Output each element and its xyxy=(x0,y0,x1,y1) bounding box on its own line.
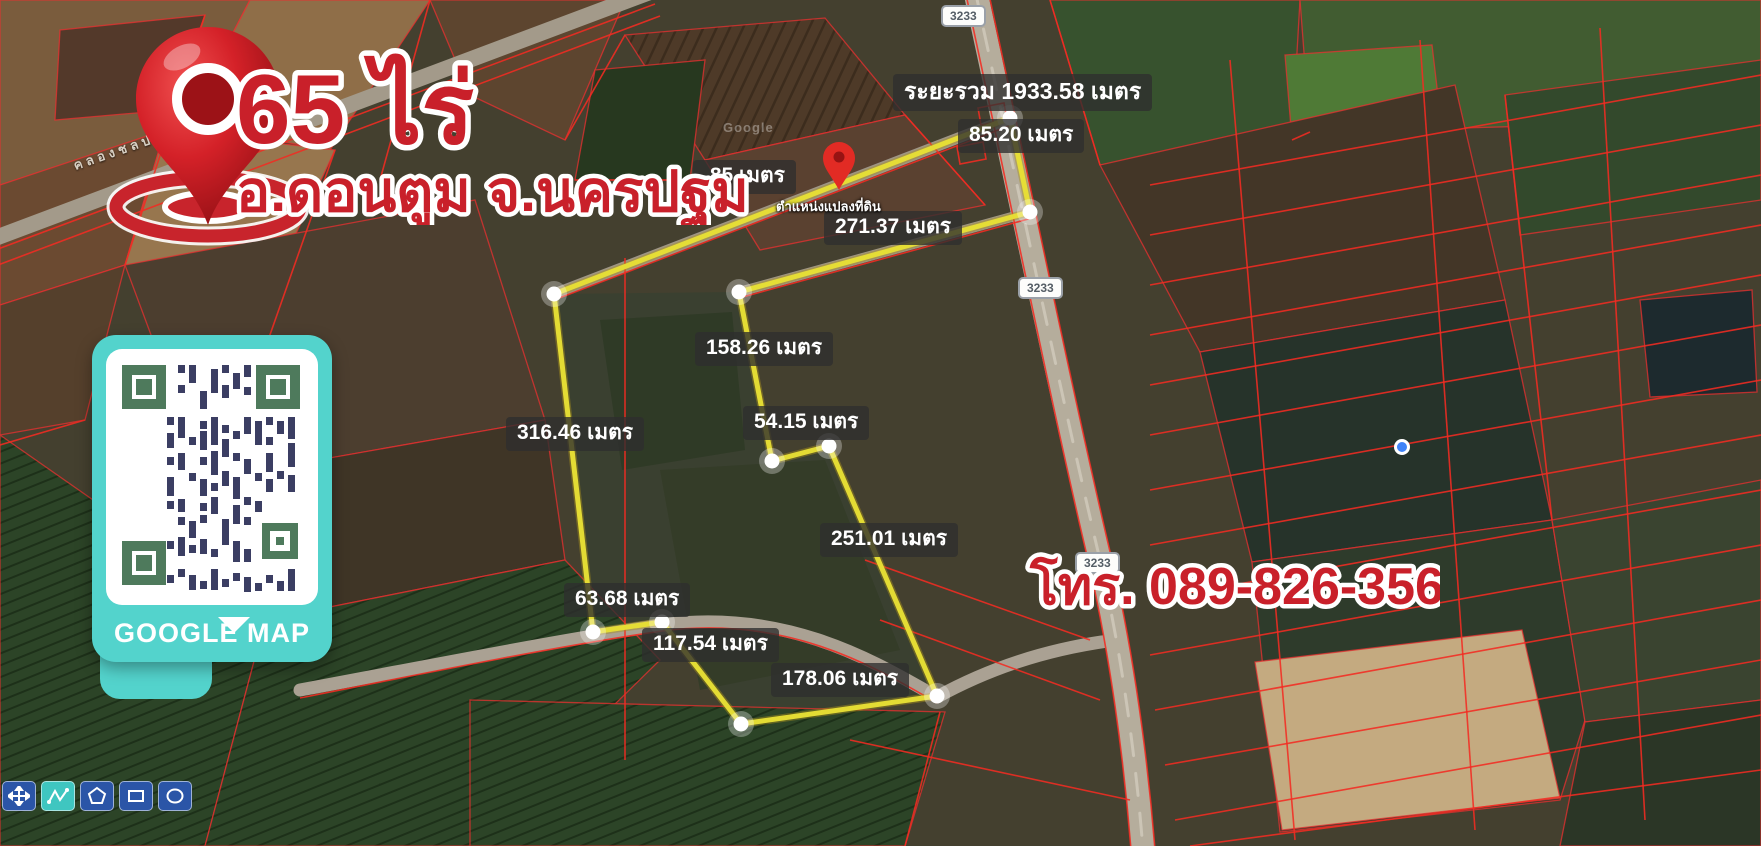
phone-block: โทร. 089-826-3563 xyxy=(1000,540,1440,635)
circle-icon xyxy=(165,786,185,806)
advert-title-block: 65 ไร่ อ.ดอนตูม จ.นครปฐม xyxy=(220,25,760,225)
circle-tool-button[interactable] xyxy=(158,781,192,811)
measurement-label-251-01: 251.01 เมตร xyxy=(820,523,958,557)
measurement-label-85-20: 85.20 เมตร xyxy=(958,119,1084,153)
area-title: 65 ไร่ xyxy=(236,53,474,164)
pan-icon xyxy=(8,786,30,806)
plot-position-caption: ตำแหน่งแปลงที่ดิน xyxy=(776,196,881,217)
qr-card-caption: GOOGLE MAP xyxy=(92,618,332,649)
measurement-label-178-06: 178.06 เมตร xyxy=(771,663,909,697)
location-title: อ.ดอนตูม จ.นครปฐม xyxy=(236,160,749,225)
map-screenshot: Google คลองชลประทาน ระยะรวม 1933.58 เมตร… xyxy=(0,0,1761,846)
freehand-measure-icon xyxy=(46,786,70,806)
rectangle-icon xyxy=(126,786,146,806)
pan-tool-button[interactable] xyxy=(2,781,36,811)
measurement-label-117-54: 117.54 เมตร xyxy=(642,628,779,662)
route-badge-3233-top: 3233 xyxy=(941,5,986,27)
rectangle-tool-button[interactable] xyxy=(119,781,153,811)
phone-number: โทร. 089-826-3563 xyxy=(1029,555,1440,616)
measurement-label-63-68: 63.68 เมตร xyxy=(564,583,690,617)
total-distance-label: ระยะรวม 1933.58 เมตร xyxy=(893,74,1152,111)
google-map-qr-card: GOOGLE MAP xyxy=(92,335,332,662)
polygon-icon xyxy=(87,786,107,806)
polygon-tool-button[interactable] xyxy=(80,781,114,811)
location-dot-icon xyxy=(1394,439,1410,455)
draw-toolbar xyxy=(2,781,192,811)
measurement-label-316-46: 316.46 เมตร xyxy=(506,417,644,451)
qr-code xyxy=(106,349,318,605)
route-badge-3233-mid: 3233 xyxy=(1018,277,1063,299)
measurement-label-54-15: 54.15 เมตร xyxy=(743,406,869,440)
freehand-measure-tool-button[interactable] xyxy=(41,781,75,811)
measurement-label-158-26: 158.26 เมตร xyxy=(695,332,833,366)
